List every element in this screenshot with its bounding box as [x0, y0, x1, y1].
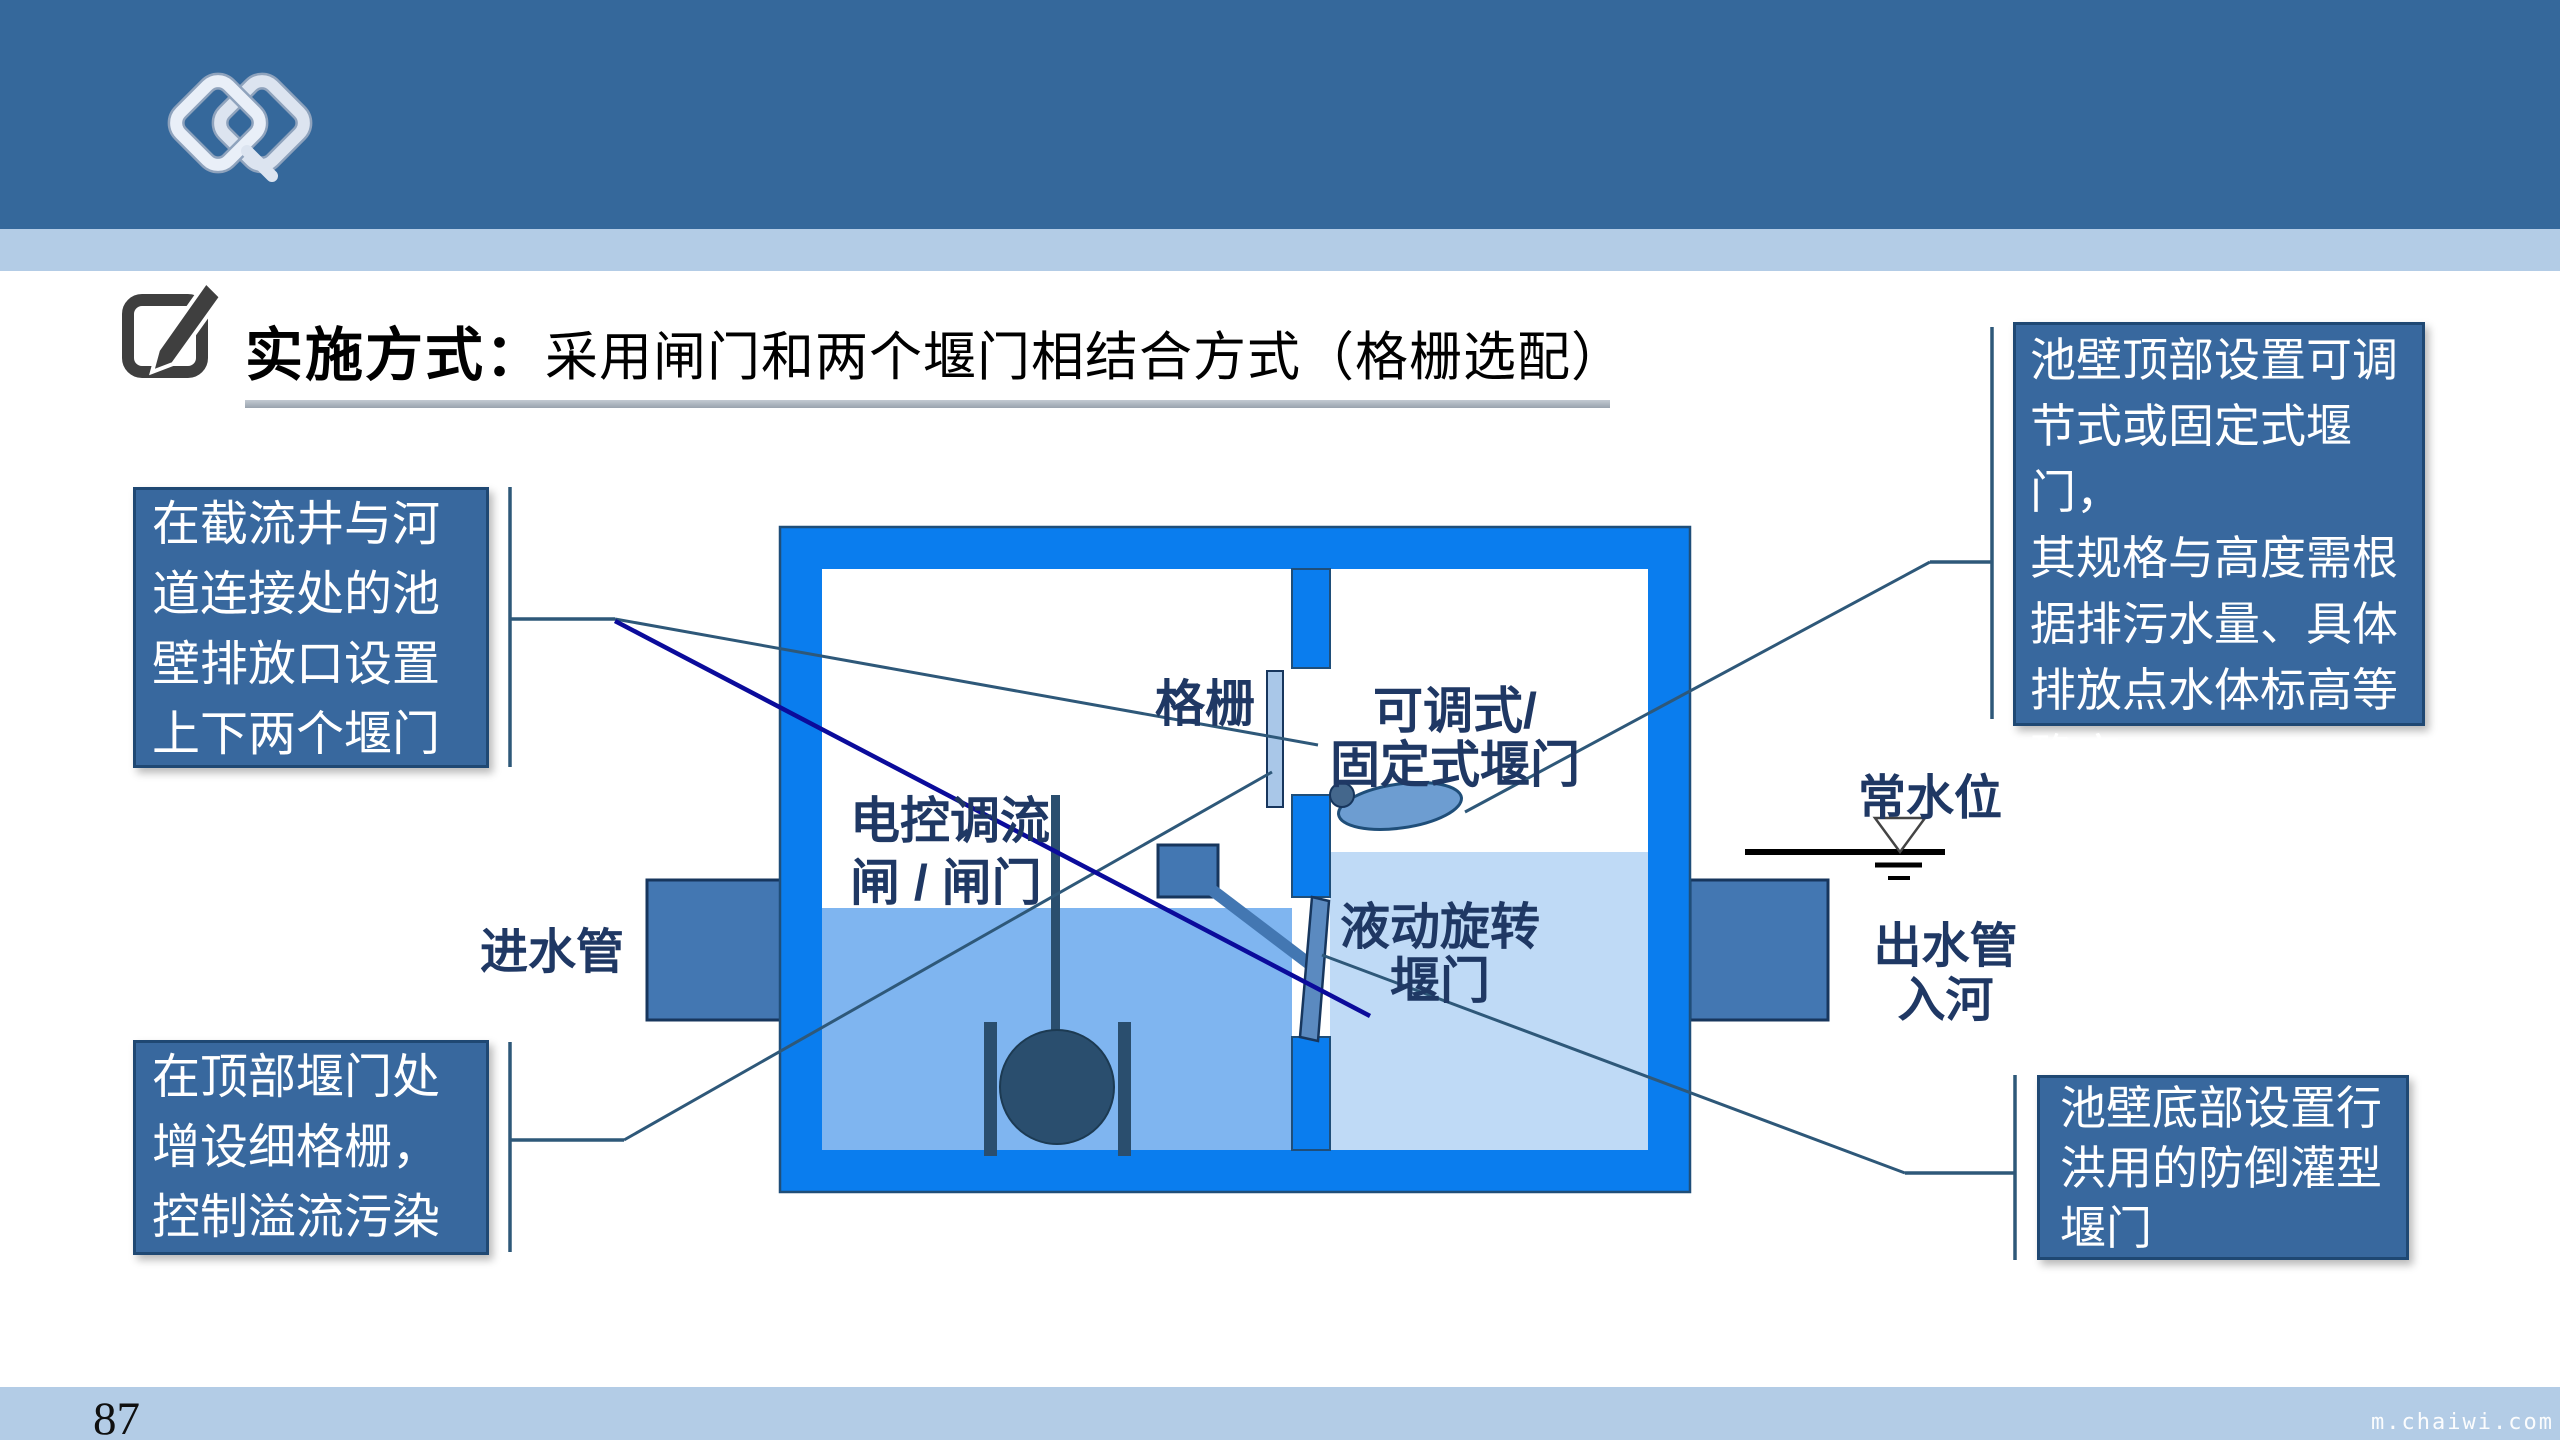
inlet-pipe	[647, 880, 782, 1020]
float-ball	[1000, 1030, 1114, 1144]
label-outlet-pipe: 出水管 入河	[1858, 920, 2033, 1028]
label-inlet-pipe: 进水管	[462, 912, 642, 982]
label-rotating-weir: 液动旋转 堰门	[1330, 900, 1550, 1008]
label-control-gate: 电控调流 闸 / 闸门	[850, 790, 1060, 914]
callout-left-bottom: 在顶部堰门处 增设细格栅， 控制溢流污染	[133, 1040, 489, 1255]
label-normal-water-level: 常水位	[1850, 758, 2010, 828]
watermark: m.chaiwi.com	[2371, 1410, 2554, 1435]
label-grating: 格栅	[1140, 664, 1270, 736]
label-top-weir: 可调式/ 固定式堰门	[1325, 684, 1585, 792]
page-number: 87	[93, 1392, 140, 1440]
callout-left-top: 在截流井与河 道连接处的池 壁排放口设置 上下两个堰门	[133, 487, 489, 768]
callout-right-bottom: 池壁底部设置行 洪用的防倒灌型 堰门	[2037, 1075, 2409, 1260]
bottom-anti-backflow-weir	[1292, 1037, 1330, 1150]
partition-upper	[1292, 569, 1330, 668]
callout-right-top: 池壁顶部设置可调 节式或固定式堰门， 其规格与高度需根 据排污水量、具体 排放点…	[2013, 322, 2425, 726]
gate-post-left	[984, 1022, 997, 1156]
slide: 实施方式： 采用闸门和两个堰门相结合方式（格栅选配）	[0, 0, 2560, 1440]
outlet-pipe	[1690, 880, 1828, 1020]
footer-band	[0, 1387, 2560, 1440]
partition-middle	[1292, 795, 1330, 897]
hydraulic-actuator	[1158, 845, 1218, 897]
gate-post-right	[1118, 1022, 1131, 1156]
